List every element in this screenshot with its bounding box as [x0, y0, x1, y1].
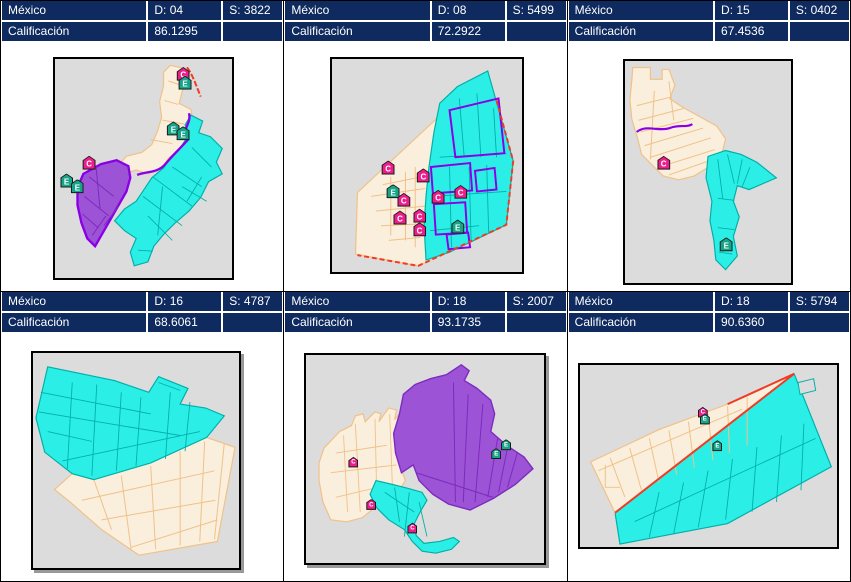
- marker-e-house-icon[interactable]: E: [177, 126, 190, 140]
- panel-grid: México D: 04 S: 3822 Calificación 86.129…: [1, 1, 850, 581]
- panel-header-table: México D: 04 S: 3822 Calificación 86.129…: [1, 1, 283, 43]
- marker-c-house-icon[interactable]: C: [382, 161, 395, 175]
- map-canvas[interactable]: CEEECEE: [53, 57, 234, 280]
- score-label-cell: Calificación: [569, 22, 713, 41]
- section-cell: S: 3822: [223, 1, 282, 20]
- section-cell: S: 0402: [790, 1, 849, 20]
- marker-e-house-icon[interactable]: E: [451, 220, 464, 234]
- section-cell: S: 4787: [223, 292, 282, 311]
- empty-cell: [507, 313, 566, 332]
- empty-cell: [223, 22, 282, 41]
- district-panel-2: México D: 08 S: 5499 Calificación 72.292…: [284, 1, 566, 291]
- country-cell: México: [285, 292, 429, 311]
- panel-header-table: México D: 18 S: 2007 Calificación 93.173…: [284, 292, 566, 334]
- marker-e-house-icon[interactable]: E: [501, 439, 511, 450]
- marker-c-house-icon[interactable]: C: [432, 190, 445, 204]
- empty-cell: [507, 22, 566, 41]
- panel-header-table: México D: 15 S: 0402 Calificación 67.453…: [568, 1, 850, 43]
- marker-e-house-icon[interactable]: E: [712, 440, 722, 451]
- score-label-cell: Calificación: [569, 313, 713, 332]
- marker-c-house-icon[interactable]: C: [348, 457, 358, 468]
- region-cyan: [706, 151, 776, 270]
- district-cell: D: 18: [432, 292, 505, 311]
- marker-c-house-icon[interactable]: C: [657, 156, 670, 170]
- district-panel-4: México D: 16 S: 4787 Calificación 68.606…: [1, 292, 283, 582]
- panel-header-table: México D: 18 S: 5794 Calificación 90.636…: [568, 292, 850, 334]
- score-label-cell: Calificación: [285, 22, 429, 41]
- district-cell: D: 18: [715, 292, 788, 311]
- panel-header-table: México D: 16 S: 4787 Calificación 68.606…: [1, 292, 283, 334]
- score-value-cell: 86.1295: [148, 22, 221, 41]
- section-cell: S: 5499: [507, 1, 566, 20]
- panel-header-table: México D: 08 S: 5499 Calificación 72.292…: [284, 1, 566, 43]
- empty-cell: [790, 313, 849, 332]
- country-cell: México: [2, 292, 146, 311]
- map-canvas[interactable]: [31, 351, 241, 570]
- district-cell: D: 08: [432, 1, 505, 20]
- district-map-svg: [580, 365, 837, 547]
- marker-e-house-icon[interactable]: E: [720, 237, 733, 251]
- district-panel-3: México D: 15 S: 0402 Calificación 67.453…: [568, 1, 850, 291]
- map-canvas[interactable]: CCCEE: [304, 353, 546, 565]
- marker-c-house-icon[interactable]: C: [366, 499, 376, 510]
- country-cell: México: [2, 1, 146, 20]
- score-value-cell: 68.6061: [148, 313, 221, 332]
- section-cell: S: 2007: [507, 292, 566, 311]
- section-cell: S: 5794: [790, 292, 849, 311]
- empty-cell: [790, 22, 849, 41]
- map-area: [1, 334, 283, 582]
- marker-c-house-icon[interactable]: C: [413, 209, 426, 223]
- marker-e-house-icon[interactable]: E: [491, 448, 501, 459]
- map-canvas[interactable]: CECCCCCCCE: [330, 57, 524, 274]
- score-value-cell: 90.6360: [715, 313, 788, 332]
- score-label-cell: Calificación: [2, 313, 146, 332]
- canvas-notch: [798, 378, 816, 394]
- marker-c-house-icon[interactable]: C: [407, 523, 417, 534]
- map-canvas[interactable]: CE: [623, 59, 793, 285]
- district-map-svg: [33, 353, 239, 568]
- map-area: CECCCCCCCE: [284, 43, 566, 291]
- marker-c-house-icon[interactable]: C: [417, 168, 430, 182]
- marker-c-house-icon[interactable]: C: [397, 193, 410, 207]
- marker-c-house-icon[interactable]: C: [413, 222, 426, 236]
- map-canvas[interactable]: CEE: [578, 363, 839, 549]
- district-map-svg: [306, 355, 544, 563]
- marker-e-house-icon[interactable]: E: [71, 179, 84, 193]
- country-cell: México: [569, 292, 713, 311]
- district-map-svg: [625, 61, 791, 283]
- empty-cell: [223, 313, 282, 332]
- map-area: CE: [568, 43, 850, 291]
- marker-e-house-icon[interactable]: E: [700, 414, 710, 425]
- district-report-sheet: México D: 04 S: 3822 Calificación 86.129…: [0, 0, 851, 582]
- district-cell: D: 15: [715, 1, 788, 20]
- marker-c-house-icon[interactable]: C: [454, 185, 467, 199]
- district-panel-1: México D: 04 S: 3822 Calificación 86.129…: [1, 1, 283, 291]
- district-cell: D: 16: [148, 292, 221, 311]
- map-area: CEE: [568, 334, 850, 582]
- marker-c-house-icon[interactable]: C: [83, 156, 96, 170]
- map-area: CCCEE: [284, 334, 566, 582]
- score-label-cell: Calificación: [285, 313, 429, 332]
- district-map-svg: [55, 59, 232, 278]
- district-cell: D: 04: [148, 1, 221, 20]
- country-cell: México: [285, 1, 429, 20]
- district-panel-6: México D: 18 S: 5794 Calificación 90.636…: [568, 292, 850, 582]
- region-purple: [77, 160, 130, 246]
- score-value-cell: 72.2922: [432, 22, 505, 41]
- score-label-cell: Calificación: [2, 22, 146, 41]
- score-value-cell: 93.1735: [432, 313, 505, 332]
- country-cell: México: [569, 1, 713, 20]
- score-value-cell: 67.4536: [715, 22, 788, 41]
- district-map-svg: [332, 59, 522, 272]
- map-area: CEEECEE: [1, 43, 283, 291]
- district-panel-5: México D: 18 S: 2007 Calificación 93.173…: [284, 292, 566, 582]
- marker-c-house-icon[interactable]: C: [393, 211, 406, 225]
- marker-e-house-icon[interactable]: E: [179, 76, 192, 90]
